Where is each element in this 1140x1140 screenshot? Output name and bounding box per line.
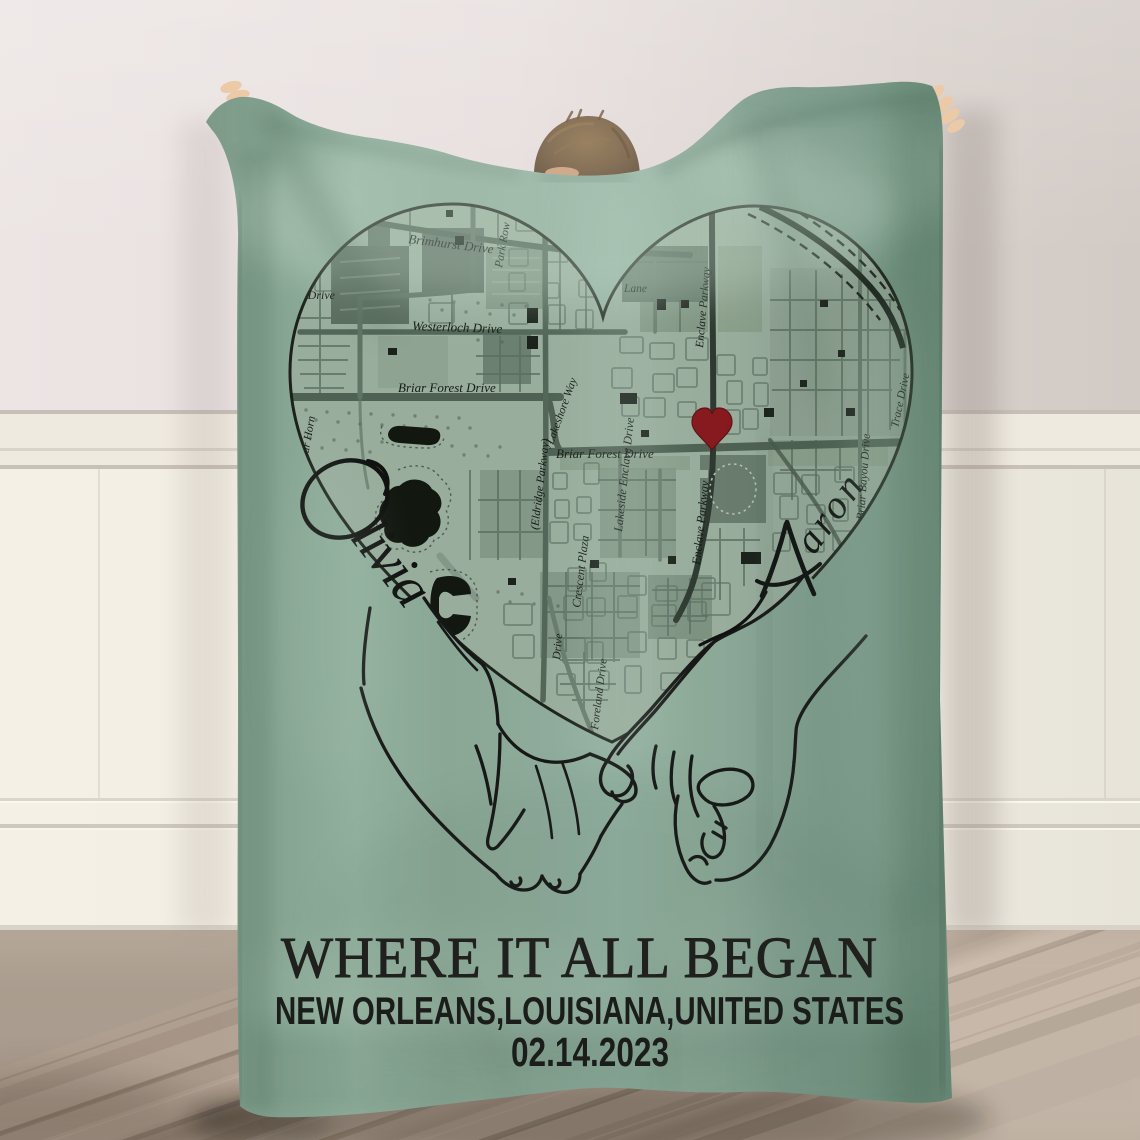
svg-text:02.14.2023: 02.14.2023 <box>511 1029 669 1075</box>
svg-text:WHERE IT ALL BEGAN: WHERE IT ALL BEGAN <box>281 925 878 990</box>
svg-text:Briar Forest Drive: Briar Forest Drive <box>398 380 496 395</box>
svg-text:Drive: Drive <box>551 633 565 661</box>
svg-text:Westerloch Drive: Westerloch Drive <box>412 318 503 336</box>
svg-text:NEW ORLEANS,LOUISIANA,UNITED S: NEW ORLEANS,LOUISIANA,UNITED STATES <box>275 990 904 1033</box>
